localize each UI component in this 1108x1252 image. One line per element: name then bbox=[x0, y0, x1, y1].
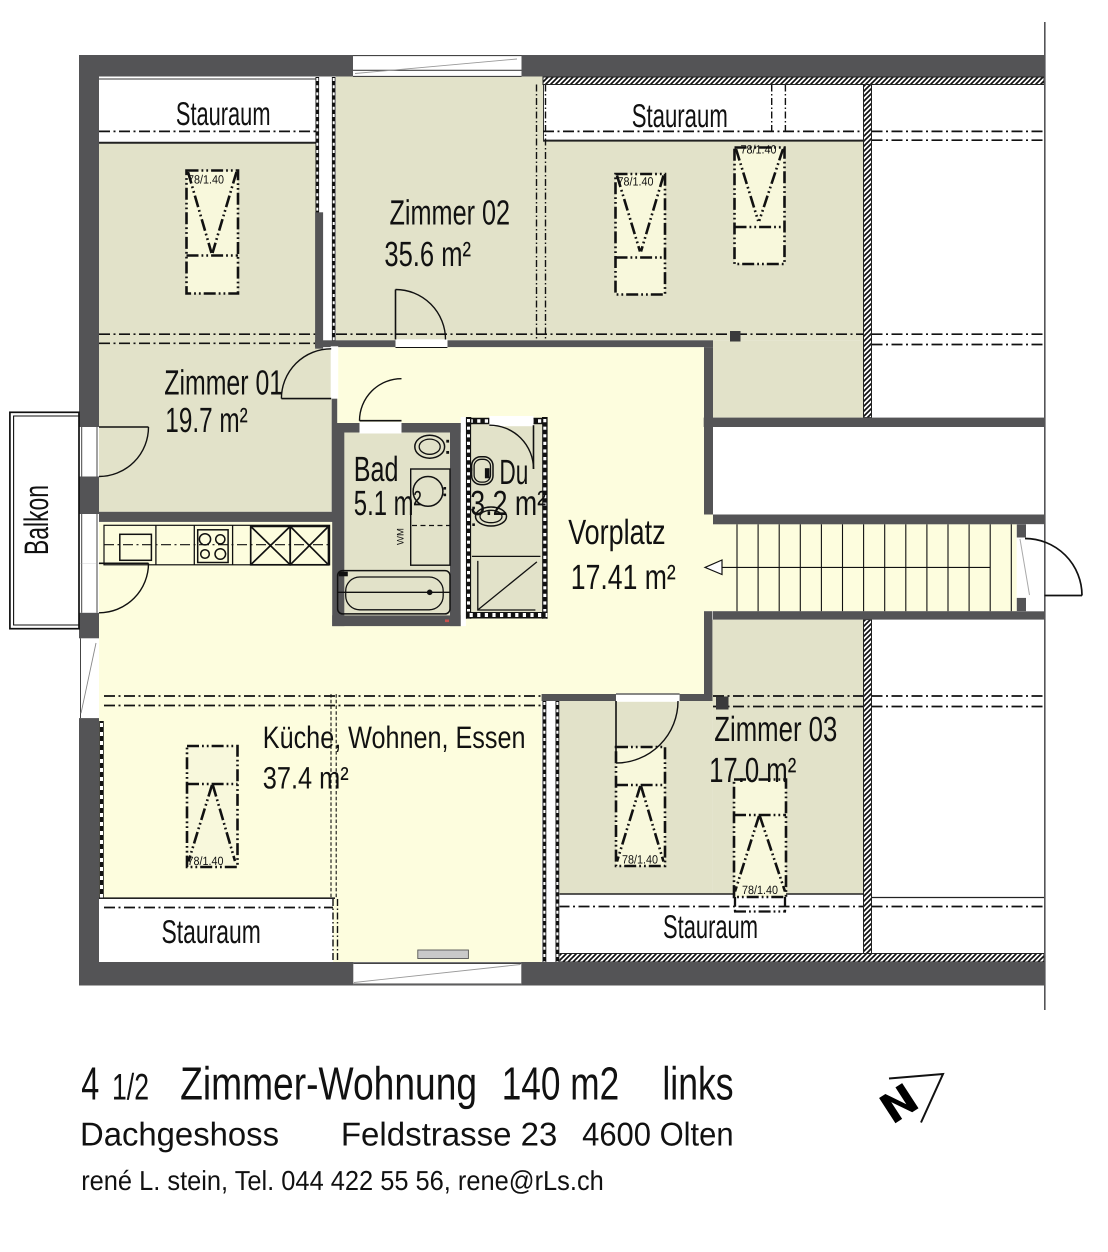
svg-text:Stauraum: Stauraum bbox=[632, 97, 728, 134]
svg-text:Balkon: Balkon bbox=[18, 485, 56, 555]
svg-text:37.4 m²: 37.4 m² bbox=[263, 760, 349, 795]
svg-text:3.2 m²: 3.2 m² bbox=[470, 484, 546, 523]
svg-text:4600 Olten: 4600 Olten bbox=[582, 1115, 734, 1152]
svg-text:78/1.40: 78/1.40 bbox=[188, 173, 224, 187]
svg-text:Vorplatz: Vorplatz bbox=[568, 513, 665, 552]
svg-text:Dachgeshoss: Dachgeshoss bbox=[80, 1115, 279, 1152]
svg-text:Feldstrasse 23: Feldstrasse 23 bbox=[341, 1115, 557, 1152]
svg-text:5.1 m²: 5.1 m² bbox=[354, 484, 422, 523]
svg-text:78/1.40: 78/1.40 bbox=[622, 853, 658, 867]
svg-text:Zimmer 03: Zimmer 03 bbox=[714, 710, 837, 749]
svg-text:rené L. stein, Tel. 044 422 55: rené L. stein, Tel. 044 422 55 56, rene@… bbox=[81, 1165, 604, 1196]
svg-text:Zimmer-Wohnung: Zimmer-Wohnung bbox=[180, 1058, 477, 1110]
svg-text:Stauraum: Stauraum bbox=[176, 95, 271, 132]
svg-text:78/1.40: 78/1.40 bbox=[741, 143, 777, 157]
svg-text:35.6 m²: 35.6 m² bbox=[384, 235, 471, 274]
svg-text:4: 4 bbox=[81, 1058, 99, 1110]
svg-text:Stauraum: Stauraum bbox=[663, 908, 758, 945]
svg-text:78/1.40: 78/1.40 bbox=[618, 175, 654, 189]
svg-text:Zimmer 02: Zimmer 02 bbox=[390, 194, 511, 233]
svg-text:19.7 m²: 19.7 m² bbox=[165, 401, 247, 440]
svg-text:Stauraum: Stauraum bbox=[162, 913, 261, 950]
svg-text:140 m2: 140 m2 bbox=[502, 1058, 620, 1110]
svg-text:Zimmer 01: Zimmer 01 bbox=[164, 363, 283, 402]
svg-text:links: links bbox=[662, 1058, 733, 1110]
svg-text:17.41 m²: 17.41 m² bbox=[571, 558, 676, 597]
svg-text:1/2: 1/2 bbox=[112, 1067, 149, 1108]
svg-text:78/1.40: 78/1.40 bbox=[188, 854, 224, 868]
svg-text:17.0 m²: 17.0 m² bbox=[709, 751, 796, 790]
svg-text:Küche, Wohnen, Essen: Küche, Wohnen, Essen bbox=[263, 720, 526, 755]
svg-text:WM: WM bbox=[396, 528, 407, 545]
svg-text:78/1.40: 78/1.40 bbox=[742, 883, 778, 897]
